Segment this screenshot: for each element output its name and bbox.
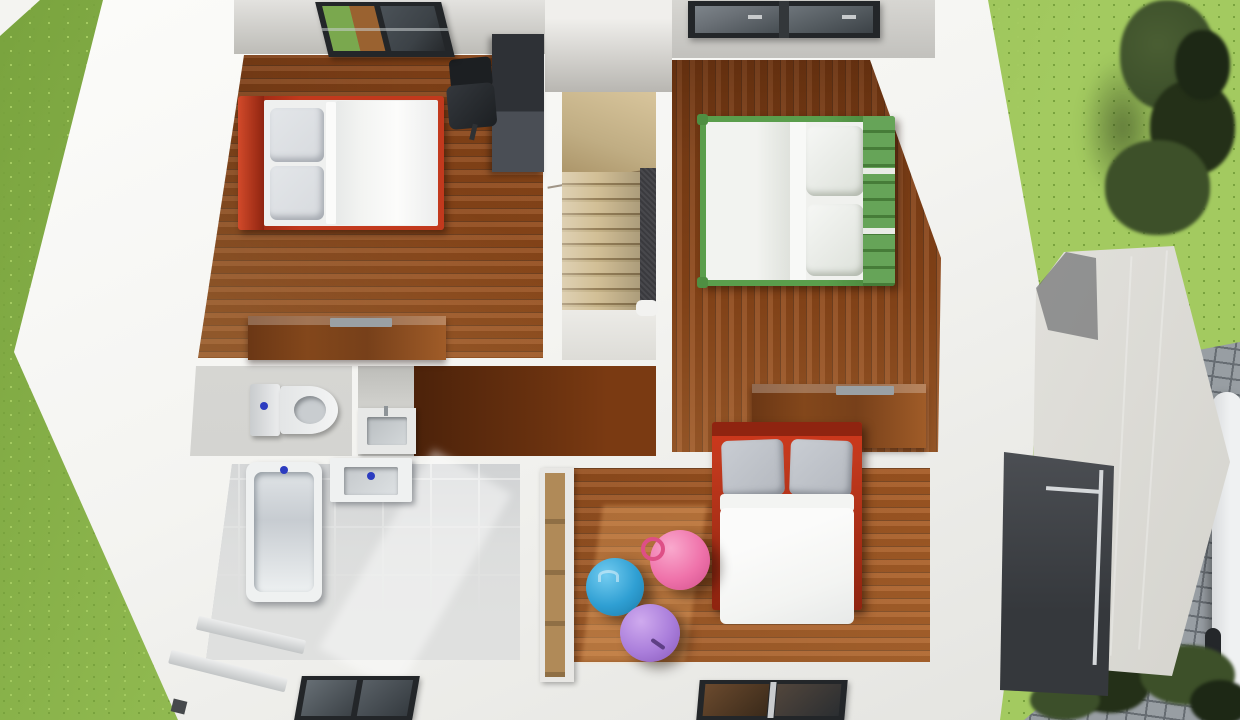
window-bar	[322, 28, 449, 31]
wardrobe-panels	[545, 473, 565, 677]
flush-button	[260, 402, 268, 410]
ball-handle	[598, 570, 619, 582]
faucet-dot	[367, 472, 375, 480]
bed-bedroom2	[700, 116, 895, 286]
bed-pillow	[721, 439, 785, 497]
window-pane	[695, 6, 779, 33]
bed-pillow	[789, 439, 853, 497]
bed-post	[697, 114, 708, 125]
floorplan-render	[0, 0, 1240, 720]
stairwell-ceiling	[545, 0, 672, 92]
window-pane	[357, 680, 413, 716]
tree-foliage	[1175, 30, 1230, 100]
washbasin	[330, 458, 412, 502]
office-chair	[440, 54, 503, 143]
dresser-tray	[330, 318, 392, 327]
roof-window-bedroom3	[696, 680, 847, 720]
bed-post	[697, 277, 708, 288]
bed-pillow	[806, 204, 864, 276]
window-handle	[842, 15, 856, 19]
bed-headboard	[863, 116, 895, 286]
bed-pillow	[270, 166, 324, 220]
dresser-bedroom1	[248, 316, 446, 360]
wardrobe	[540, 468, 574, 682]
toilet-bowl-inner	[294, 396, 326, 424]
roof-window-bedroom1	[315, 2, 455, 57]
counter-faucet	[384, 406, 388, 416]
bed-sheet-fold	[326, 102, 336, 224]
bed-duvet	[336, 101, 438, 225]
dresser-tray	[836, 386, 894, 395]
bed-pillow	[270, 108, 324, 162]
toilet	[250, 380, 342, 440]
bed-pillow	[806, 126, 864, 196]
stair-landing	[562, 310, 656, 360]
bed-headboard	[238, 96, 264, 230]
stair-newel-post	[636, 300, 658, 316]
window-pane	[301, 680, 357, 716]
window-mullion	[779, 1, 789, 38]
faucet-dot	[280, 466, 288, 474]
headboard-strap	[863, 168, 895, 174]
bed-bedroom3	[712, 422, 862, 610]
ball-valve	[650, 638, 665, 650]
roof-window-bathroom	[294, 676, 420, 720]
window-pane	[775, 684, 842, 716]
bed-duvet	[706, 122, 790, 280]
window-pane	[703, 684, 770, 716]
shrub	[1190, 680, 1240, 720]
counter-sink	[367, 417, 407, 445]
shadow-overlay	[414, 366, 656, 456]
staircase-steps	[562, 172, 640, 312]
bathtub	[246, 462, 322, 602]
roof-window-bedroom2	[688, 1, 880, 38]
bed-bedroom1	[238, 96, 444, 230]
exercise-ball-purple	[620, 604, 680, 662]
tree	[1080, 0, 1240, 255]
window-pane	[789, 6, 873, 33]
stair-void-carpet	[640, 168, 656, 312]
tree-foliage	[1105, 140, 1210, 235]
bed-sheet-fold	[790, 122, 806, 280]
chair-seat	[446, 82, 498, 130]
window-handle	[748, 15, 762, 19]
exercise-ball-pink	[650, 530, 710, 590]
bed-headboard	[712, 422, 862, 436]
toilet-cistern	[250, 384, 280, 436]
ball-handle	[641, 537, 665, 561]
bed-duvet	[720, 508, 854, 624]
hallway-floor	[414, 366, 656, 456]
tub-basin	[254, 472, 314, 592]
staircase-winders	[562, 92, 656, 176]
utility-counter	[358, 408, 416, 454]
headboard-strap	[863, 228, 895, 234]
